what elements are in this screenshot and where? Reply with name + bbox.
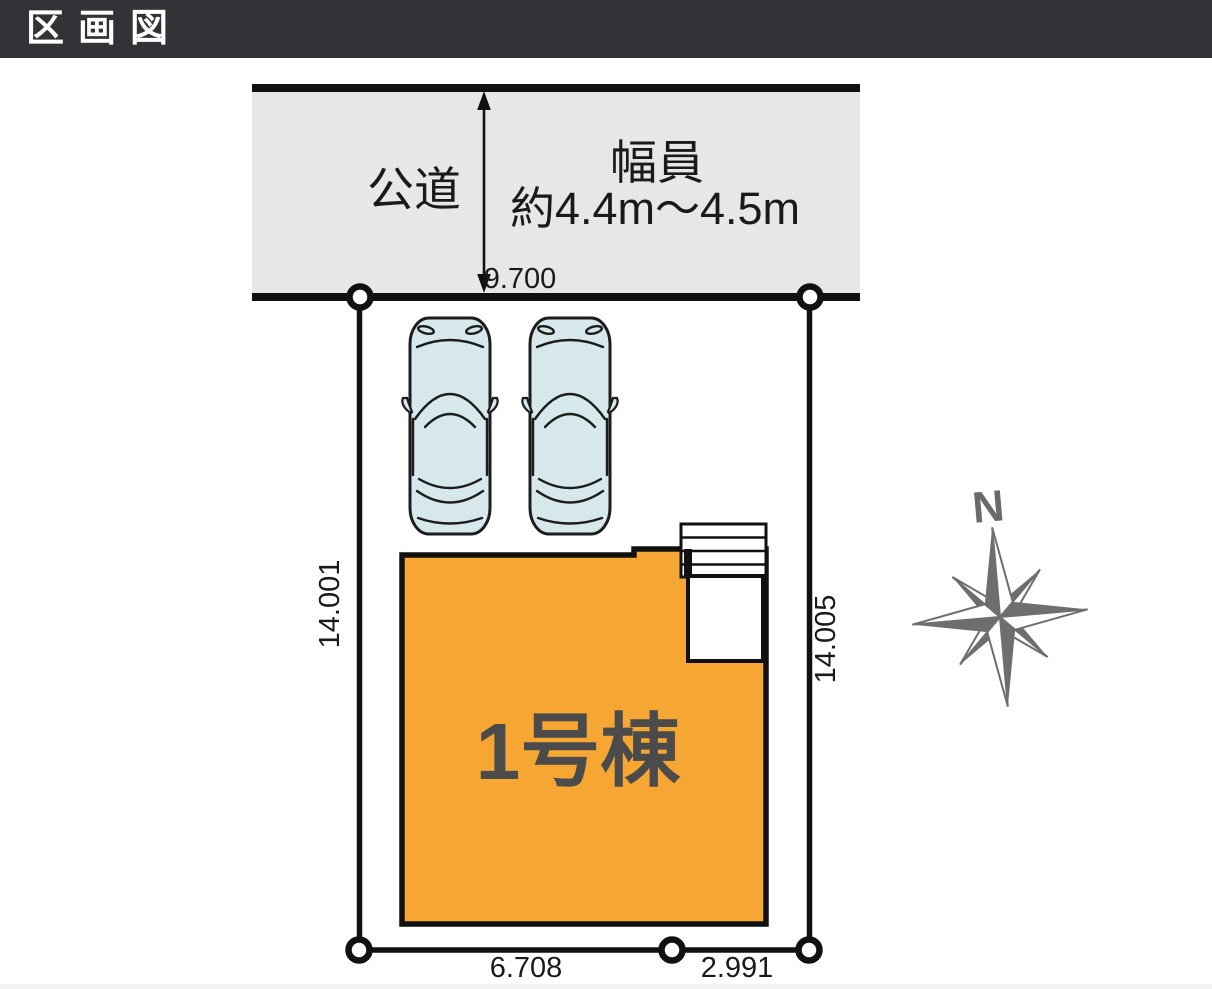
site-plan-drawing: 公道 幅員 約4.4m～4.5m 9.700 1号棟 xyxy=(0,0,1212,989)
entrance-stairs xyxy=(681,524,766,577)
boundary-point xyxy=(799,940,820,961)
dimension-bottom-right: 2.991 xyxy=(701,952,774,984)
road-label: 公道 xyxy=(367,163,461,216)
boundary-point xyxy=(349,940,370,961)
plot-map-page: 区画図 xyxy=(0,0,1212,989)
building-label: 1号棟 xyxy=(476,707,681,796)
car-icon xyxy=(402,318,497,534)
dimension-right-side: 14.005 xyxy=(810,595,842,684)
entrance-porch xyxy=(688,576,763,661)
boundary-point xyxy=(800,287,821,308)
dimension-frontage: 9.700 xyxy=(484,263,557,295)
car-icon xyxy=(522,318,617,534)
footer-strip xyxy=(0,984,1212,989)
compass-north-label: N xyxy=(970,481,1006,533)
road-width-caption-line2: 約4.4m～4.5m xyxy=(510,183,800,234)
building-1: 1号棟 xyxy=(402,524,766,924)
road-upper-edge xyxy=(252,84,860,92)
public-road: 公道 幅員 約4.4m～4.5m 9.700 xyxy=(252,84,860,301)
parking-area xyxy=(402,318,617,534)
boundary-point xyxy=(350,287,371,308)
dimension-left-side: 14.001 xyxy=(314,560,346,649)
dimension-bottom-left: 6.708 xyxy=(490,952,563,984)
boundary-point xyxy=(662,940,683,961)
road-width-caption-line1: 幅員 xyxy=(610,136,704,189)
compass-rose: N xyxy=(901,475,1096,714)
